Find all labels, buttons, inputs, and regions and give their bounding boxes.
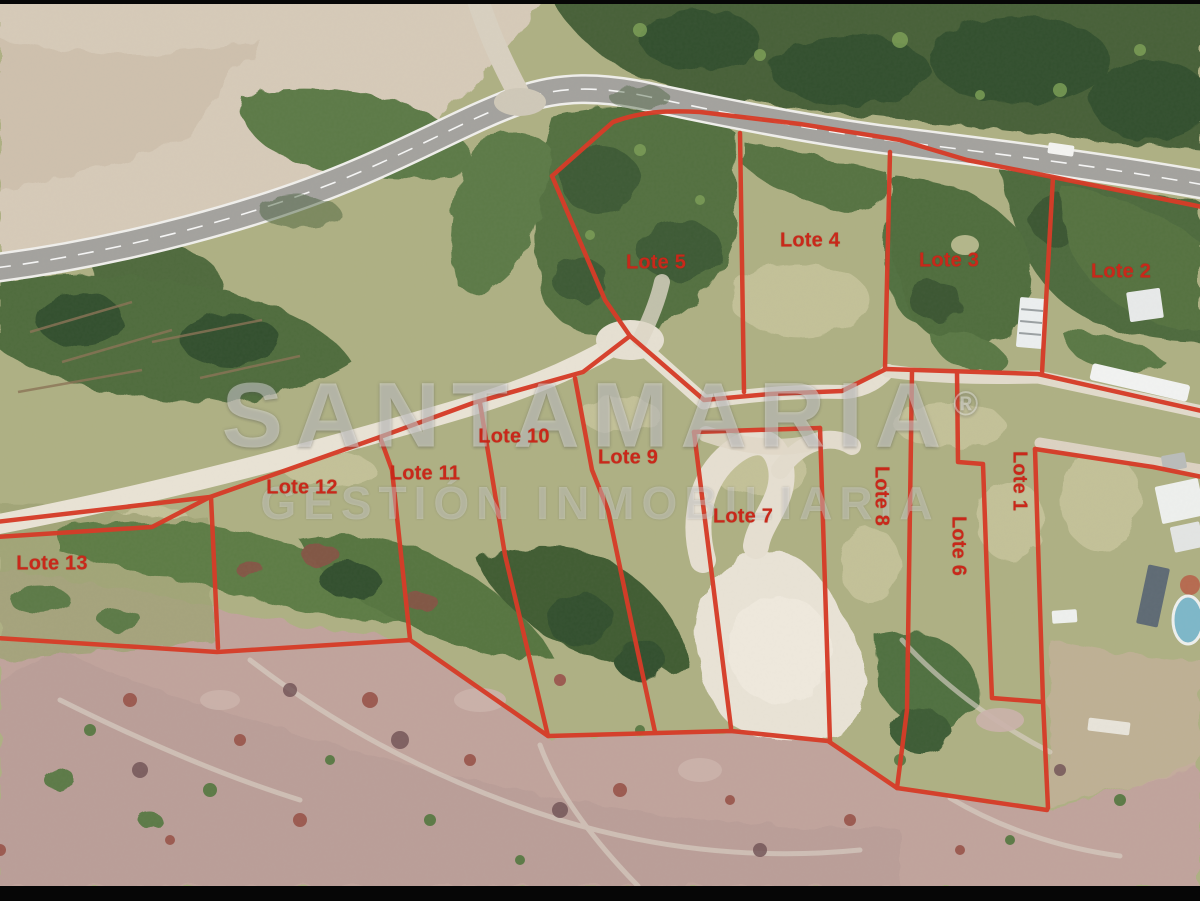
lot-label-5: Lote 5	[626, 252, 686, 275]
lot-label-1: Lote 1	[1008, 451, 1031, 511]
lot-label-12: Lote 12	[266, 477, 337, 500]
lot-label-4: Lote 4	[780, 230, 840, 253]
lot-label-13: Lote 13	[16, 553, 87, 576]
lot-label-10: Lote 10	[478, 426, 549, 449]
letterbox-top	[0, 0, 1200, 4]
lot-label-2: Lote 2	[1091, 261, 1151, 284]
lot-label-6: Lote 6	[947, 516, 970, 576]
lot-label-3: Lote 3	[919, 250, 979, 273]
letterbox-bottom	[0, 886, 1200, 901]
lot-label-8: Lote 8	[870, 466, 893, 526]
lot-label-11: Lote 11	[390, 463, 460, 486]
aerial-lot-map: SANTAMARIA® GESTIÓN INMOBILIARIA Lote 1 …	[0, 0, 1200, 901]
lot-label-9: Lote 9	[598, 447, 658, 470]
lot-label-7: Lote 7	[713, 506, 773, 529]
